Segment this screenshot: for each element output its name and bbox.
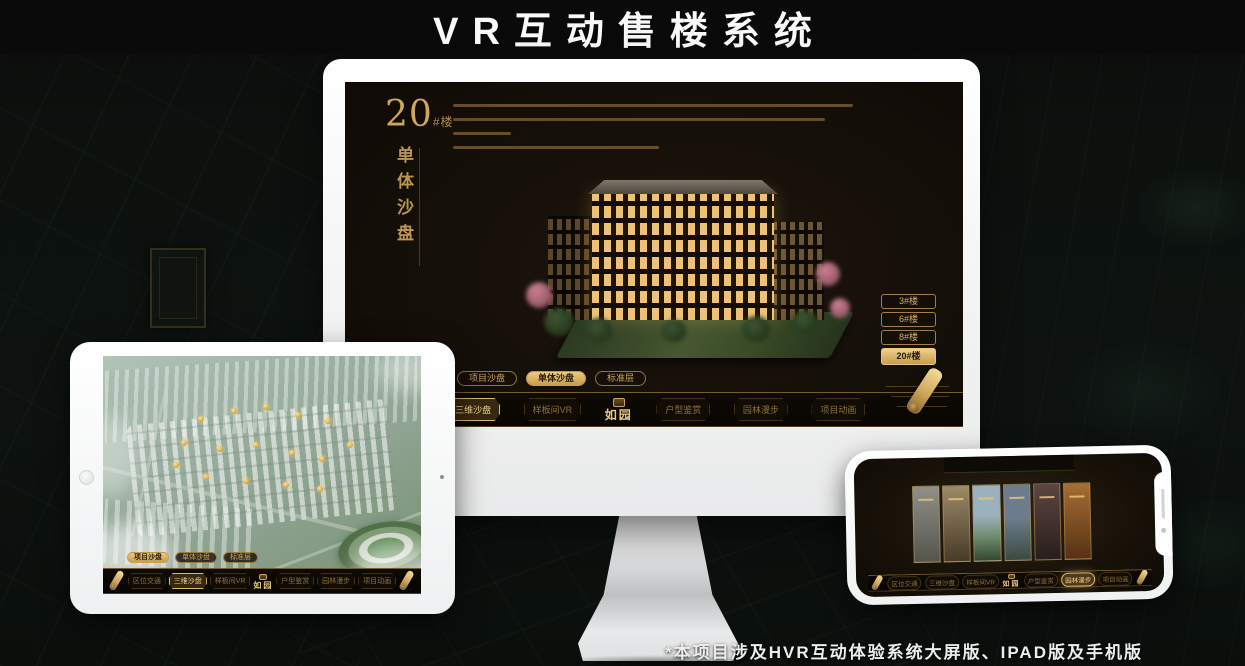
floor-button-8[interactable]: 8#楼	[881, 330, 936, 345]
nav-item-garden-walk[interactable]: 园林漫步	[1061, 572, 1095, 587]
tablet-device: 项目沙盘 单体沙盘 标准层 区位交通 三维沙盘 样板间VR 如园 户型鉴赏 园林…	[70, 342, 455, 614]
brand-logo: 如园	[253, 574, 273, 589]
building-marker[interactable]	[263, 404, 269, 410]
tree-blossom	[830, 298, 850, 318]
tablet-sandbox-tabs: 项目沙盘 单体沙盘 标准层	[127, 552, 258, 563]
building-marker[interactable]	[181, 440, 187, 446]
floor-button-3[interactable]: 3#楼	[881, 294, 936, 309]
tree	[544, 308, 574, 336]
floor-button-6[interactable]: 6#楼	[881, 312, 936, 327]
scene-card[interactable]	[1003, 484, 1032, 562]
building-marker[interactable]	[325, 418, 331, 424]
scene-card[interactable]	[942, 485, 971, 563]
scroll-brush-icon[interactable]	[109, 570, 125, 592]
scroll-brush-icon[interactable]	[399, 570, 415, 592]
building-marker[interactable]	[289, 450, 295, 456]
description-line	[453, 132, 511, 135]
interior-ceiling	[944, 455, 1074, 474]
phone-camera-icon	[1161, 528, 1166, 533]
nav-item-3d-sandbox[interactable]: 三维沙盘	[169, 573, 207, 589]
building-marker[interactable]	[295, 412, 301, 418]
building-marker[interactable]	[253, 442, 259, 448]
tree	[742, 316, 770, 342]
tree-blossom	[526, 282, 552, 308]
tree	[792, 310, 818, 334]
nav-item-location[interactable]: 区位交通	[128, 573, 166, 589]
building-marker[interactable]	[173, 462, 179, 468]
scroll-brush-icon[interactable]	[885, 364, 955, 422]
phone-screen: 区位交通 三维沙盘 样板间VR 如园 户型鉴赏 园林漫步 项目动画	[854, 453, 1165, 597]
nav-item-unit-gallery[interactable]: 户型鉴赏	[276, 573, 314, 589]
scene-card[interactable]	[1063, 482, 1092, 560]
scene-card[interactable]	[912, 485, 941, 563]
nav-item-3d-sandbox[interactable]: 三维沙盘	[925, 575, 959, 590]
tab-standard-floor[interactable]: 标准层	[595, 371, 646, 386]
building-roof	[582, 180, 784, 194]
phone-bottom-nav: 区位交通 三维沙盘 样板间VR 如园 户型鉴赏 园林漫步 项目动画	[868, 569, 1152, 592]
building-marker[interactable]	[317, 486, 323, 492]
tree	[662, 320, 686, 342]
page-title: VR互动售楼系统	[0, 0, 1245, 55]
nav-item-showroom-vr[interactable]: 样板间VR	[524, 398, 582, 421]
tablet-screen: 项目沙盘 单体沙盘 标准层 区位交通 三维沙盘 样板间VR 如园 户型鉴赏 园林…	[103, 356, 421, 594]
nav-item-project-animation[interactable]: 项目动画	[811, 398, 865, 421]
building-marker[interactable]	[347, 442, 353, 448]
nav-item-showroom-vr[interactable]: 样板间VR	[962, 574, 999, 589]
tablet-camera-icon	[440, 475, 444, 479]
building-marker[interactable]	[203, 474, 209, 480]
nav-item-garden-walk[interactable]: 园林漫步	[317, 573, 355, 589]
brand-logo-icon	[259, 574, 267, 580]
floor-unit: #楼	[433, 115, 454, 129]
footnote: *本项目涉及HVR互动体验系统大屏版、IPAD版及手机版	[665, 638, 1143, 663]
scroll-brush-icon[interactable]	[1136, 570, 1149, 585]
building-marker[interactable]	[217, 446, 223, 452]
phone-speaker-icon	[1161, 489, 1165, 519]
background-plaque	[150, 248, 206, 328]
brand-logo-text: 如园	[1002, 580, 1020, 587]
floor-number: 20	[385, 94, 433, 135]
building-left-wing	[548, 216, 594, 320]
floor-subtitle: 单体沙盘	[391, 146, 416, 306]
nav-item-project-animation[interactable]: 项目动画	[1098, 571, 1132, 586]
brand-logo-icon	[613, 398, 625, 407]
floor-title: 20#楼	[385, 94, 454, 135]
tablet-bottom-nav: 区位交通 三维沙盘 样板间VR 如园 户型鉴赏 园林漫步 项目动画	[103, 568, 421, 594]
tab-single-sandbox[interactable]: 单体沙盘	[526, 371, 586, 386]
floor-button-20[interactable]: 20#楼	[881, 348, 936, 365]
description-line	[453, 104, 853, 107]
building-marker[interactable]	[319, 456, 325, 462]
brand-logo-text: 如园	[605, 409, 633, 421]
nav-item-unit-gallery[interactable]: 户型鉴赏	[1024, 572, 1058, 587]
nav-item-unit-gallery[interactable]: 户型鉴赏	[656, 398, 710, 421]
building-marker[interactable]	[283, 482, 289, 488]
sandbox-tabs: 项目沙盘 单体沙盘 标准层	[457, 371, 646, 386]
scroll-brush-icon[interactable]	[871, 576, 884, 591]
scene-card-gallery	[912, 482, 1092, 563]
nav-item-location[interactable]: 区位交通	[887, 575, 921, 590]
promo-composite: VR互动售楼系统 20#楼 单体沙盘	[0, 0, 1245, 666]
nav-item-showroom-vr[interactable]: 样板间VR	[210, 573, 251, 589]
scene-card[interactable]	[1033, 483, 1062, 561]
description-line	[453, 146, 659, 149]
nav-item-project-animation[interactable]: 项目动画	[358, 573, 396, 589]
tab-project-sandbox[interactable]: 项目沙盘	[127, 552, 169, 563]
brand-logo-text: 如园	[253, 581, 273, 589]
description-line	[453, 118, 825, 121]
tab-project-sandbox[interactable]: 项目沙盘	[457, 371, 517, 386]
tablet-home-button[interactable]	[79, 470, 94, 485]
nav-item-garden-walk[interactable]: 园林漫步	[734, 398, 788, 421]
building-marker[interactable]	[198, 416, 204, 422]
subtitle-divider	[419, 148, 420, 266]
building-marker[interactable]	[243, 478, 249, 484]
phone-device: 区位交通 三维沙盘 样板间VR 如园 户型鉴赏 园林漫步 项目动画	[844, 445, 1173, 606]
tab-standard-floor[interactable]: 标准层	[223, 552, 258, 563]
tree-blossom	[816, 262, 840, 286]
phone-notch	[1154, 472, 1173, 556]
building-marker[interactable]	[231, 408, 237, 414]
tree	[586, 318, 612, 342]
brand-logo: 如园	[1002, 574, 1020, 587]
scene-card[interactable]	[972, 484, 1001, 562]
building-facade	[592, 192, 774, 320]
building-render	[530, 170, 850, 358]
tab-single-sandbox[interactable]: 单体沙盘	[175, 552, 217, 563]
brand-logo: 如园	[605, 398, 633, 421]
